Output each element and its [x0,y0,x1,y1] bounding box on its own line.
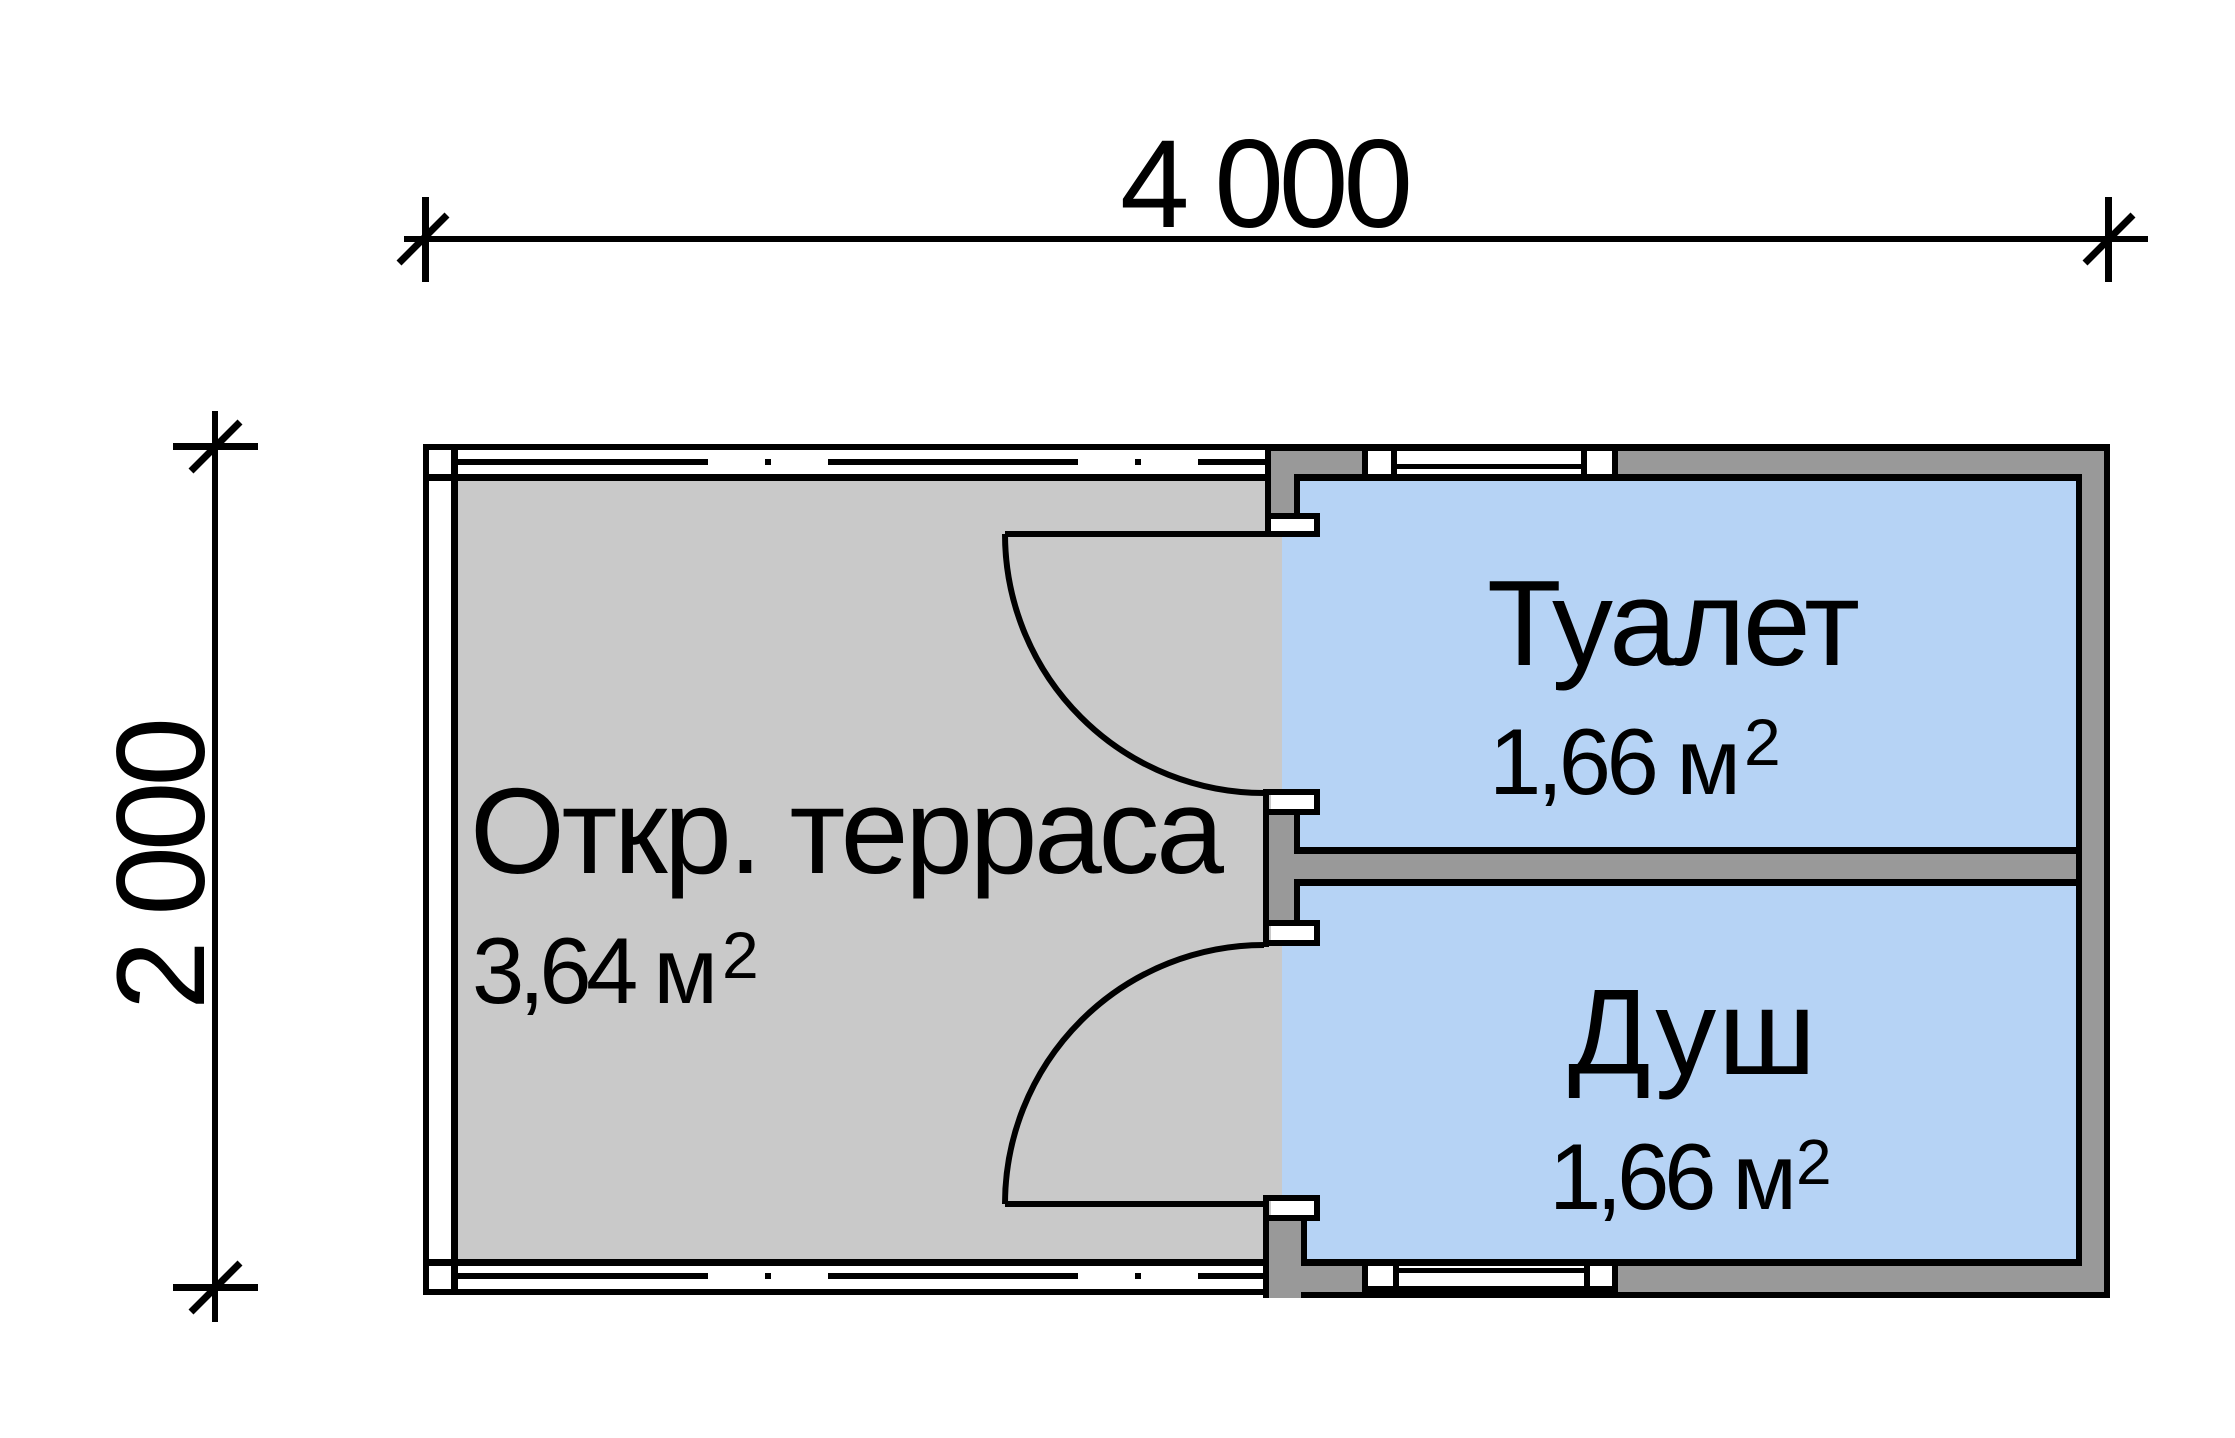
svg-text:1,66 м: 1,66 м [1549,1124,1797,1229]
svg-text:4 000: 4 000 [1120,115,1413,254]
svg-text:3,64 м: 3,64 м [472,918,718,1023]
svg-text:2: 2 [1744,705,1781,779]
svg-text:Душ: Душ [1568,964,1816,1100]
svg-text:1,66 м: 1,66 м [1489,709,1741,814]
svg-text:2: 2 [722,918,759,992]
svg-text:2: 2 [1796,1126,1832,1198]
svg-text:Откр. терраса: Откр. терраса [470,763,1224,899]
svg-text:Туалет: Туалет [1487,555,1860,691]
svg-text:2 000: 2 000 [92,717,231,1010]
